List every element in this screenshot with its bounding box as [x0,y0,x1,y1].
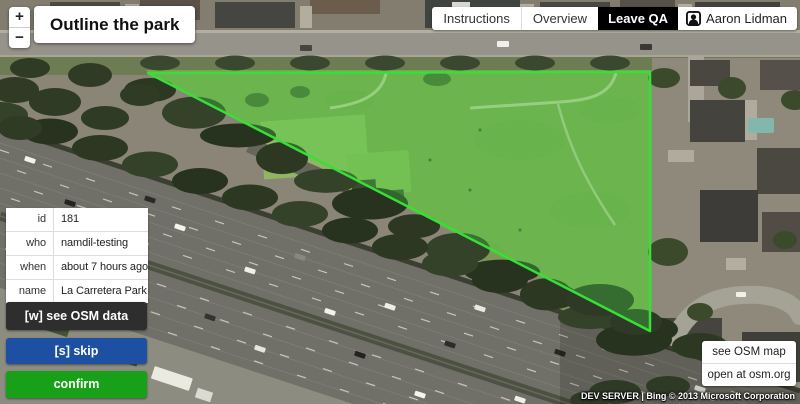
see-osm-map-link[interactable]: see OSM map [702,341,796,363]
leave-qa-button[interactable]: Leave QA [598,7,678,30]
nav-overview[interactable]: Overview [521,7,598,30]
zoom-out-button[interactable]: − [9,28,30,48]
row-label: name [6,280,54,303]
zoom-in-button[interactable]: + [9,7,30,28]
skip-button[interactable]: [s] skip [6,338,147,364]
row-label: when [6,256,54,279]
top-nav: Instructions Overview Leave QA Aaron Lid… [432,7,797,30]
see-osm-data-button[interactable]: [w] see OSM data [6,302,147,330]
table-row-id: id 181 [6,208,148,231]
osm-links-box: see OSM map open at osm.org [702,341,796,386]
user-avatar-icon [686,11,701,26]
table-row-name: name La Carretera Park [6,279,148,303]
confirm-button[interactable]: confirm [6,371,147,398]
row-value: 181 [54,208,79,231]
table-row-who: who namdil-testing [6,231,148,255]
row-label: id [6,208,54,231]
row-value: namdil-testing [54,232,128,255]
feature-info-table: id 181 who namdil-testing when about 7 h… [6,208,148,303]
row-label: who [6,232,54,255]
row-value: about 7 hours ago [54,256,148,279]
row-value: La Carretera Park [54,280,147,303]
task-title: Outline the park [34,6,195,43]
open-at-osm-link[interactable]: open at osm.org [702,363,796,386]
user-menu[interactable]: Aaron Lidman [678,7,797,30]
nav-instructions[interactable]: Instructions [432,7,520,30]
table-row-when: when about 7 hours ago [6,255,148,279]
map-attribution: DEV SERVER | Bing © 2013 Microsoft Corpo… [581,391,795,401]
user-name: Aaron Lidman [706,7,787,30]
qa-task-app: + − Outline the park Instructions Overvi… [0,0,800,404]
map-zoom-control: + − [9,7,30,48]
